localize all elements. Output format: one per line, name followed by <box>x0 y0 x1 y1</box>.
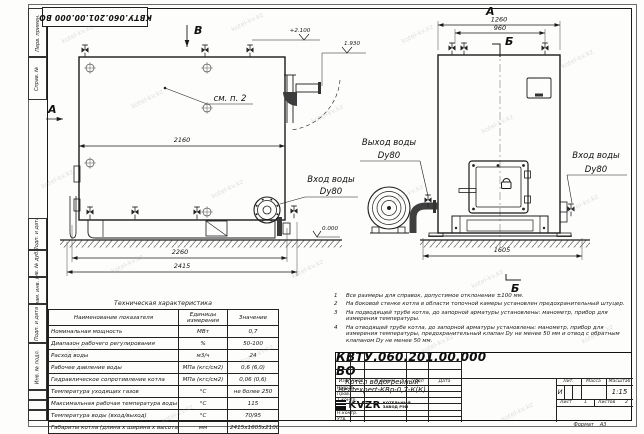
counter-flange <box>283 223 290 234</box>
inlet-flange-icon <box>254 197 280 223</box>
valve-icon <box>82 45 89 57</box>
lock-icon <box>503 179 510 182</box>
inlet-label: Вход воды <box>572 151 620 161</box>
door-slot <box>535 94 543 97</box>
position-mark-icon <box>84 62 96 74</box>
dim-value: 2415 <box>174 262 191 270</box>
drawing-canvas: В +2.100 1.930 см. п. 2 <box>0 0 644 430</box>
front-view: В +2.100 1.930 см. п. 2 <box>46 24 366 276</box>
elevation-mark-icon <box>313 231 321 237</box>
outlet-label: Выход воды <box>362 138 416 148</box>
elevation-value: 0.000 <box>322 226 338 232</box>
furnace-door <box>459 161 531 213</box>
outlet-label-dn: Dy80 <box>378 151 400 161</box>
dim-value: 2160 <box>174 136 191 144</box>
elevation-mark-icon <box>342 47 352 53</box>
callout-text: см. п. 2 <box>214 94 247 104</box>
valve-icon <box>87 207 94 219</box>
dim-value: 960 <box>494 24 506 32</box>
elevation-value: 1.930 <box>344 41 360 47</box>
position-mark-icon <box>201 206 213 218</box>
dim-value: 1260 <box>491 16 508 24</box>
valve-icon <box>568 204 575 216</box>
dim-value: 2260 <box>172 248 189 256</box>
valve-icon <box>247 45 254 57</box>
side-view: А 1260 960 Б <box>360 5 627 295</box>
valve-icon <box>542 43 549 55</box>
elevation-value: +2.100 <box>290 28 311 34</box>
inlet-label-dn: Dy80 <box>585 165 607 175</box>
valve-icon <box>194 207 201 219</box>
elevation-mark-icon <box>299 34 309 40</box>
door-swing-arc <box>290 80 340 130</box>
flange <box>433 200 436 213</box>
leader-line <box>420 161 428 196</box>
section-letter-b: Б <box>511 282 519 295</box>
dim-value: 1605 <box>494 246 511 254</box>
position-mark-icon <box>201 62 213 74</box>
valve-icon <box>461 43 468 55</box>
leader-line <box>280 197 305 204</box>
inlet-label-dn: Dy80 <box>320 187 342 197</box>
lock-icon <box>502 182 512 189</box>
inlet-label: Вход воды <box>307 175 355 185</box>
leader-line <box>567 175 572 203</box>
section-letter-v: В <box>194 24 202 37</box>
fan-blower-icon <box>368 187 410 233</box>
view-arrow-letter-a: А <box>47 103 57 116</box>
valve-icon <box>291 206 298 218</box>
valve-icon <box>449 43 456 55</box>
flue-outlet <box>283 75 340 130</box>
counter-flange <box>277 217 282 236</box>
boiler-body-side <box>438 55 560 233</box>
boiler-base <box>88 220 275 238</box>
section-letter-b: Б <box>505 35 513 48</box>
section-line-b-bottom <box>506 274 521 280</box>
drain-pipe <box>70 196 76 238</box>
valve-icon <box>132 207 139 219</box>
door-handle <box>459 189 476 193</box>
position-mark-icon <box>84 157 96 169</box>
ground-hatch <box>60 241 342 248</box>
valve-icon <box>202 45 209 57</box>
blueprint-sheet: { "watermark_text": "kotel-kv.kz", "corn… <box>0 0 644 430</box>
